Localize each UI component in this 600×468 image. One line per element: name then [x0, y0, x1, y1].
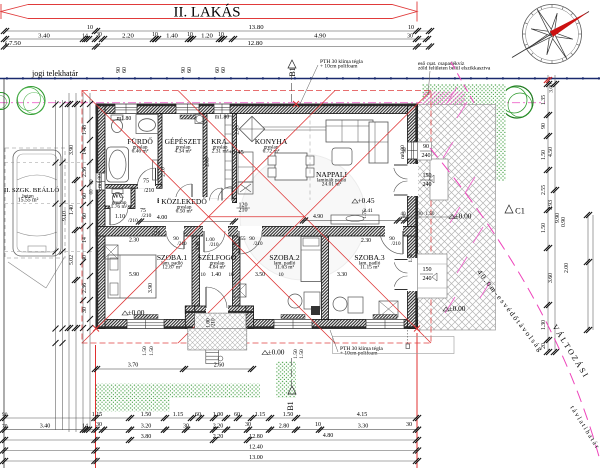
svg-text:60: 60 — [234, 412, 240, 418]
svg-text:90: 90 — [423, 144, 429, 150]
svg-text:II. LAKÁS: II. LAKÁS — [174, 4, 241, 21]
svg-text:2.90: 2.90 — [195, 241, 201, 250]
svg-text:13.00: 13.00 — [249, 455, 263, 461]
svg-text:70: 70 — [2, 424, 8, 430]
svg-text:+0.45: +0.45 — [228, 149, 244, 156]
svg-text:2.90: 2.90 — [233, 241, 239, 250]
svg-text:+ 10cm polifoam: + 10cm polifoam — [320, 63, 358, 70]
svg-text:90: 90 — [541, 123, 547, 129]
svg-text:30: 30 — [183, 424, 189, 430]
svg-text:2.10: 2.10 — [161, 167, 167, 177]
svg-text:2.80: 2.80 — [279, 424, 290, 430]
svg-text:1.20: 1.20 — [201, 32, 213, 39]
svg-text:12.40: 12.40 — [249, 445, 263, 451]
svg-text:150: 150 — [422, 267, 431, 273]
svg-text:1.50: 1.50 — [293, 349, 299, 359]
svg-text:14: 14 — [82, 149, 88, 155]
svg-text:60: 60 — [89, 189, 95, 195]
svg-text:1.50: 1.50 — [142, 346, 148, 356]
svg-text:10: 10 — [228, 272, 234, 278]
svg-text:60: 60 — [89, 179, 95, 185]
svg-text:240: 240 — [422, 276, 431, 282]
svg-text:3.40: 3.40 — [40, 424, 51, 430]
svg-text:40: 40 — [400, 211, 406, 217]
svg-text:3.00: 3.00 — [549, 83, 555, 93]
svg-text:10: 10 — [87, 25, 93, 31]
svg-text:/210: /210 — [142, 213, 152, 219]
svg-text:1.15: 1.15 — [173, 412, 184, 418]
svg-text:+ 10cm polifoam: + 10cm polifoam — [340, 350, 378, 357]
svg-text:1.50: 1.50 — [541, 150, 547, 160]
svg-text:0.90: 0.90 — [561, 217, 567, 227]
svg-text:10: 10 — [200, 272, 206, 278]
svg-text:m1.80: m1.80 — [97, 174, 103, 188]
svg-text:14: 14 — [82, 33, 88, 39]
svg-text:5.90: 5.90 — [129, 272, 139, 278]
svg-text:15.55 m²: 15.55 m² — [18, 198, 39, 204]
svg-text:1.40: 1.40 — [166, 32, 178, 39]
svg-text:12.87 m²: 12.87 m² — [162, 265, 182, 271]
svg-text:90: 90 — [2, 412, 8, 418]
svg-text:12.80: 12.80 — [247, 40, 263, 47]
svg-text:3.93: 3.93 — [548, 200, 554, 210]
svg-text:11.15 m²: 11.15 m² — [360, 265, 380, 271]
svg-text:30: 30 — [82, 307, 88, 313]
svg-text:1.50: 1.50 — [541, 223, 547, 233]
svg-text:60: 60 — [82, 213, 88, 219]
svg-text:60: 60 — [215, 67, 221, 73]
svg-text:m1.80: m1.80 — [117, 116, 132, 122]
svg-text:14: 14 — [82, 424, 88, 430]
svg-text:2.63: 2.63 — [235, 125, 241, 135]
svg-text:3.70: 3.70 — [128, 363, 139, 369]
svg-text:4.90: 4.90 — [314, 32, 326, 39]
svg-text:1.75: 1.75 — [362, 209, 368, 219]
svg-text:2.30: 2.30 — [129, 238, 139, 244]
svg-text:60: 60 — [122, 67, 128, 73]
svg-text:2.20: 2.20 — [213, 424, 224, 430]
svg-text:75: 75 — [143, 179, 149, 185]
svg-text:60: 60 — [221, 67, 227, 73]
svg-text:1.50: 1.50 — [149, 346, 155, 356]
svg-text:jogi telekhatár: jogi telekhatár — [31, 69, 78, 78]
svg-text:2.20: 2.20 — [122, 32, 134, 39]
svg-text:C1: C1 — [515, 207, 525, 216]
svg-text:90: 90 — [417, 211, 423, 217]
svg-text:90: 90 — [402, 147, 408, 153]
svg-text:6.46 m²: 6.46 m² — [132, 149, 149, 155]
svg-text:m1.80: m1.80 — [215, 115, 230, 121]
svg-text:3.80: 3.80 — [141, 434, 152, 440]
svg-text:/210: /210 — [209, 242, 219, 248]
svg-text:1.50: 1.50 — [283, 412, 294, 418]
svg-text:60: 60 — [187, 67, 193, 73]
svg-text:±0.00: ±0.00 — [455, 212, 472, 221]
svg-text:90: 90 — [116, 67, 122, 73]
svg-text:1.50: 1.50 — [426, 211, 435, 217]
svg-text:2.20: 2.20 — [213, 434, 224, 440]
svg-text:3.20: 3.20 — [141, 424, 152, 430]
svg-text:4.80: 4.80 — [323, 433, 334, 439]
svg-text:5.02: 5.02 — [69, 255, 75, 265]
svg-text:30: 30 — [245, 422, 251, 428]
svg-text:2.60: 2.60 — [214, 363, 225, 369]
svg-text:/210: /210 — [152, 232, 161, 237]
svg-text:60: 60 — [82, 193, 88, 199]
svg-text:10: 10 — [152, 32, 158, 38]
svg-text:B1: B1 — [286, 401, 295, 410]
svg-text:4.00: 4.00 — [157, 215, 168, 221]
svg-text:60: 60 — [195, 412, 201, 418]
svg-text:1.50: 1.50 — [408, 253, 414, 262]
svg-text:/210: /210 — [177, 241, 187, 247]
svg-text:6.50 m²: 6.50 m² — [176, 209, 193, 215]
svg-text:2.30: 2.30 — [361, 238, 371, 244]
svg-text:3.30: 3.30 — [337, 272, 347, 278]
svg-text:3.60: 3.60 — [548, 273, 554, 283]
svg-text:1.15: 1.15 — [92, 412, 103, 418]
svg-text:4.15: 4.15 — [357, 412, 368, 418]
svg-text:1.00: 1.00 — [213, 412, 224, 418]
svg-text:240: 240 — [421, 153, 430, 159]
svg-text:1.30: 1.30 — [541, 320, 547, 330]
svg-text:±0.00: ±0.00 — [268, 348, 285, 357]
svg-text:240: 240 — [422, 182, 431, 188]
svg-text:1.76 m²: 1.76 m² — [111, 204, 128, 210]
svg-text:30: 30 — [407, 33, 413, 39]
svg-text:10: 10 — [278, 272, 284, 278]
svg-text:10: 10 — [218, 32, 224, 38]
svg-text:/210: /210 — [253, 241, 263, 247]
svg-text:1.48: 1.48 — [82, 125, 88, 135]
svg-text:1.50: 1.50 — [141, 412, 152, 418]
svg-text:2.36: 2.36 — [82, 283, 88, 293]
svg-text:3.90: 3.90 — [69, 145, 75, 155]
svg-text:10: 10 — [315, 422, 321, 428]
svg-text:1.40: 1.40 — [211, 272, 221, 278]
svg-text:3.90: 3.90 — [148, 283, 154, 293]
svg-text:2.55: 2.55 — [541, 185, 547, 195]
svg-text:II. SZGK. BEÁLLÓ: II. SZGK. BEÁLLÓ — [4, 186, 59, 194]
svg-text:11.63 m²: 11.63 m² — [275, 265, 295, 271]
svg-text:1.40: 1.40 — [69, 205, 75, 215]
svg-text:+0.45: +0.45 — [357, 196, 374, 205]
svg-text:12.80: 12.80 — [249, 434, 263, 440]
svg-text:4.50: 4.50 — [548, 147, 554, 157]
svg-text:1.35: 1.35 — [541, 95, 547, 105]
svg-text:9.10: 9.10 — [62, 211, 68, 221]
svg-text:/210: /210 — [211, 318, 217, 328]
svg-text:±0.00: ±0.00 — [449, 304, 466, 313]
svg-text:3.50: 3.50 — [255, 272, 265, 278]
svg-text:4.84 m²: 4.84 m² — [209, 265, 226, 271]
svg-text:/210: /210 — [391, 241, 401, 247]
svg-text:10: 10 — [187, 32, 193, 38]
svg-text:3.40: 3.40 — [38, 32, 50, 39]
svg-text:( 7.50: ( 7.50 — [5, 40, 21, 47]
svg-text:3.30: 3.30 — [358, 424, 369, 430]
svg-text:14: 14 — [82, 237, 88, 243]
svg-text:2.36: 2.36 — [82, 167, 88, 177]
svg-text:30: 30 — [96, 32, 102, 38]
svg-text:30: 30 — [406, 422, 412, 428]
svg-text:90: 90 — [181, 67, 187, 73]
svg-text:2.31 m²: 2.31 m² — [212, 149, 229, 155]
svg-text:/210: /210 — [144, 188, 154, 194]
svg-text:1.10: 1.10 — [115, 214, 125, 220]
svg-text:1.15: 1.15 — [255, 412, 266, 418]
svg-text:75: 75 — [153, 226, 159, 232]
svg-text:9.90: 9.90 — [555, 213, 561, 223]
svg-text:13.80: 13.80 — [248, 24, 264, 31]
svg-text:4.90: 4.90 — [313, 214, 323, 220]
svg-text:30: 30 — [96, 422, 102, 428]
svg-text:210: 210 — [238, 208, 247, 214]
svg-text:55: 55 — [240, 236, 246, 242]
svg-text:2.00: 2.00 — [564, 263, 570, 273]
svg-text:10: 10 — [408, 25, 414, 31]
svg-text:B1: B1 — [288, 67, 297, 76]
svg-text:40: 40 — [82, 255, 88, 261]
svg-text:1.50: 1.50 — [299, 349, 305, 359]
svg-text:4.34 m²: 4.34 m² — [175, 149, 192, 155]
svg-text:2.63: 2.63 — [205, 157, 211, 167]
